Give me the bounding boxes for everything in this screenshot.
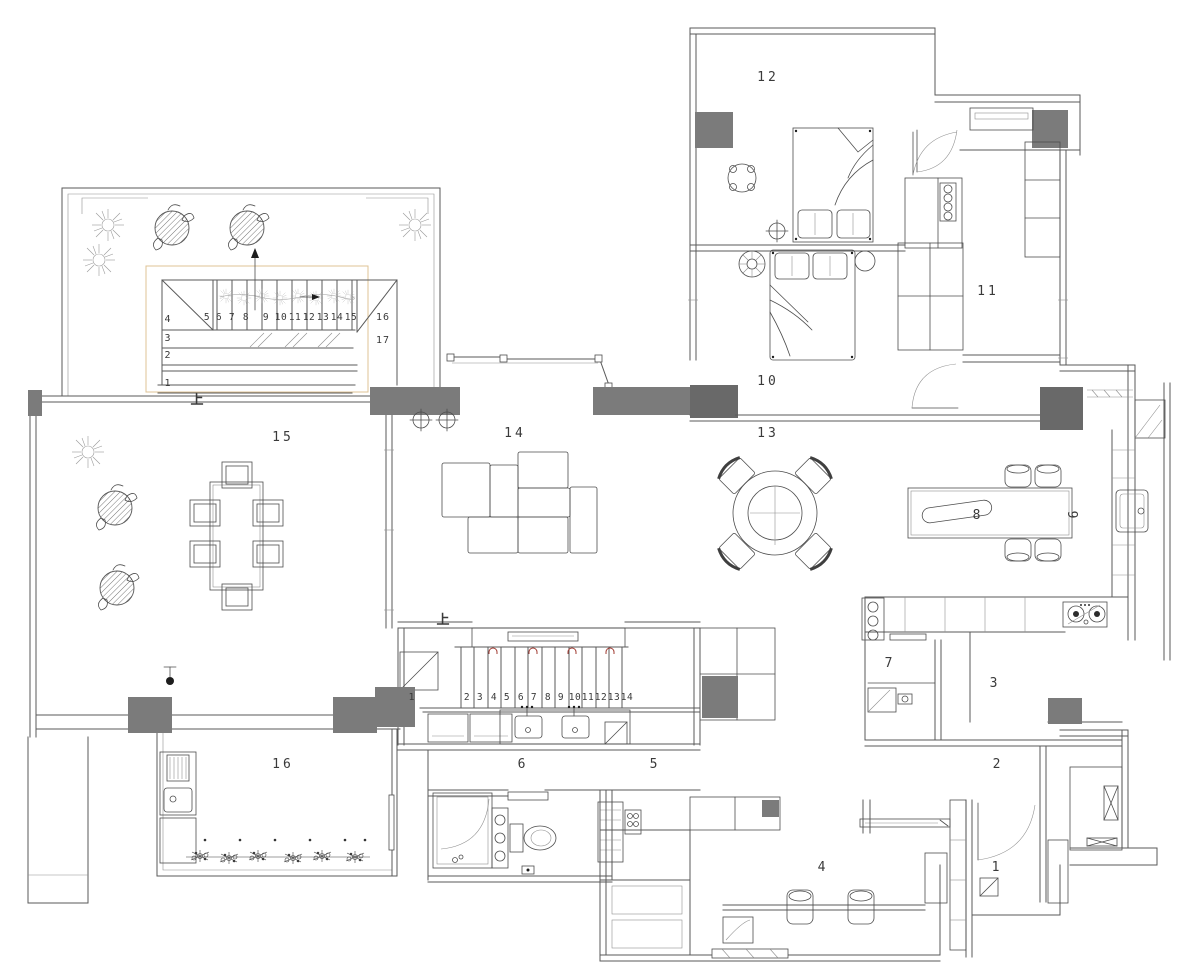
sink-left bbox=[515, 706, 542, 738]
tread-2: 2 bbox=[164, 350, 171, 361]
shoe-cabinet bbox=[980, 878, 998, 896]
label-room-15: 15 bbox=[272, 430, 294, 445]
kitchen bbox=[862, 365, 1170, 660]
vanity bbox=[398, 706, 700, 750]
ltread-4: 4 bbox=[491, 692, 497, 703]
label-room-10: 10 bbox=[757, 374, 779, 389]
ltread-14: 14 bbox=[621, 692, 633, 703]
corner-pantry bbox=[1135, 400, 1165, 438]
floor-plan-drawing: 15 14 13 10 12 11 8 9 7 3 2 16 6 5 4 1 4… bbox=[0, 0, 1200, 980]
label-room-2: 2 bbox=[993, 757, 1004, 772]
ltread-2: 2 bbox=[464, 692, 470, 703]
lower-staircase bbox=[375, 622, 700, 750]
shaft-left bbox=[400, 652, 438, 690]
storage-unit-center bbox=[700, 628, 775, 720]
door-11 bbox=[913, 132, 957, 175]
label-room-3: 3 bbox=[990, 676, 1001, 691]
pantry-sink bbox=[868, 688, 912, 712]
living-room-14 bbox=[370, 354, 738, 553]
tread-6: 6 bbox=[216, 312, 222, 323]
ltread-9: 9 bbox=[558, 692, 564, 703]
ltread-5: 5 bbox=[504, 692, 510, 703]
stair-plant-strip bbox=[219, 289, 355, 305]
up-label-terrace: 上 bbox=[190, 393, 203, 408]
label-room-5: 5 bbox=[650, 757, 661, 772]
bed-12 bbox=[793, 128, 873, 242]
stair-up-arrow bbox=[251, 248, 320, 310]
modular-sofa bbox=[442, 452, 597, 553]
entry-area bbox=[950, 730, 1157, 957]
room-4-cabinets bbox=[690, 797, 950, 903]
left-living-area bbox=[28, 390, 440, 737]
ltread-10: 10 bbox=[569, 692, 581, 703]
wardrobe-right bbox=[1025, 142, 1060, 257]
counter-stool-2 bbox=[848, 890, 874, 924]
tread-12: 12 bbox=[303, 312, 315, 323]
entry-door bbox=[978, 803, 1035, 860]
counter-stool-1 bbox=[787, 890, 813, 924]
sink-right bbox=[562, 706, 589, 738]
stool-10 bbox=[855, 251, 875, 271]
dressing-room-11 bbox=[898, 108, 1068, 365]
tread-14: 14 bbox=[331, 312, 343, 323]
island-8 bbox=[908, 465, 1072, 561]
planter-row bbox=[186, 839, 370, 864]
tread-16: 16 bbox=[376, 312, 390, 323]
label-room-7: 7 bbox=[885, 656, 896, 671]
kitchen-sink bbox=[1116, 490, 1148, 532]
door-10 bbox=[912, 364, 958, 408]
ltread-12: 12 bbox=[595, 692, 607, 703]
tread-3: 3 bbox=[164, 333, 171, 344]
tread-13: 13 bbox=[317, 312, 329, 323]
tread-11: 11 bbox=[289, 312, 301, 323]
label-room-16: 16 bbox=[272, 757, 294, 772]
corner-cabinet bbox=[723, 917, 753, 943]
stair-accent-outline bbox=[146, 266, 368, 392]
lower-stair-numbers: 1 2 3 4 5 6 7 8 9 10 11 12 13 14 上 bbox=[408, 613, 633, 703]
label-room-14: 14 bbox=[504, 426, 526, 441]
tread-15: 15 bbox=[345, 312, 357, 323]
toilet bbox=[510, 824, 556, 852]
tall-cabinet-5 bbox=[598, 802, 623, 862]
label-room-9: 9 bbox=[1064, 511, 1079, 522]
ltread-3: 3 bbox=[477, 692, 483, 703]
label-room-11: 11 bbox=[977, 284, 999, 299]
ltread-13: 13 bbox=[608, 692, 620, 703]
tread-7: 7 bbox=[229, 312, 235, 323]
tread-5: 5 bbox=[204, 312, 210, 323]
ltread-1: 1 bbox=[408, 692, 415, 703]
tread-8: 8 bbox=[243, 312, 249, 323]
window-top-right bbox=[1087, 390, 1133, 397]
utility-block bbox=[1060, 730, 1157, 865]
tread-4: 4 bbox=[164, 314, 171, 325]
closet-12 bbox=[905, 178, 962, 248]
label-room-8: 8 bbox=[973, 508, 984, 523]
bed-10 bbox=[770, 250, 855, 360]
upper-staircase bbox=[146, 248, 397, 393]
ltread-11: 11 bbox=[582, 692, 594, 703]
laundry-sink bbox=[160, 752, 196, 863]
ltread-8: 8 bbox=[545, 692, 551, 703]
up-label-lower: 上 bbox=[436, 613, 449, 628]
tread-17: 17 bbox=[376, 335, 390, 346]
survey-marker bbox=[766, 220, 788, 242]
label-room-6: 6 bbox=[518, 757, 529, 772]
window-bottom bbox=[712, 949, 788, 958]
ltread-7: 7 bbox=[531, 692, 537, 703]
dining-table-set bbox=[190, 462, 283, 610]
bedroom-10 bbox=[688, 250, 1083, 430]
wardrobe-middle bbox=[898, 243, 963, 350]
room-labels: 15 14 13 10 12 11 8 9 7 3 2 16 6 5 4 1 bbox=[272, 70, 1079, 875]
rooms-7-3-2 bbox=[700, 597, 1122, 746]
label-room-1: 1 bbox=[992, 860, 1003, 875]
label-room-4: 4 bbox=[818, 860, 829, 875]
shower bbox=[433, 793, 492, 868]
bottom-rooms bbox=[600, 790, 950, 961]
tread-10: 10 bbox=[275, 312, 287, 323]
tread-1: 1 bbox=[164, 378, 171, 389]
floor-plan-canvas: 15 14 13 10 12 11 8 9 7 3 2 16 6 5 4 1 4… bbox=[0, 0, 1200, 980]
yard-16 bbox=[28, 697, 397, 903]
floor-lamp bbox=[164, 667, 176, 685]
ltread-6: 6 bbox=[518, 692, 524, 703]
tread-9: 9 bbox=[263, 312, 269, 323]
gas-stove bbox=[1063, 602, 1107, 627]
label-room-13: 13 bbox=[757, 426, 779, 441]
bath-shelf bbox=[492, 808, 508, 868]
label-room-12: 12 bbox=[757, 70, 779, 85]
fan-plant bbox=[739, 251, 765, 277]
shaft-right bbox=[605, 722, 627, 744]
round-table-set bbox=[716, 455, 834, 572]
bedroom-12 bbox=[690, 28, 1080, 251]
bedside-stool bbox=[728, 164, 756, 192]
